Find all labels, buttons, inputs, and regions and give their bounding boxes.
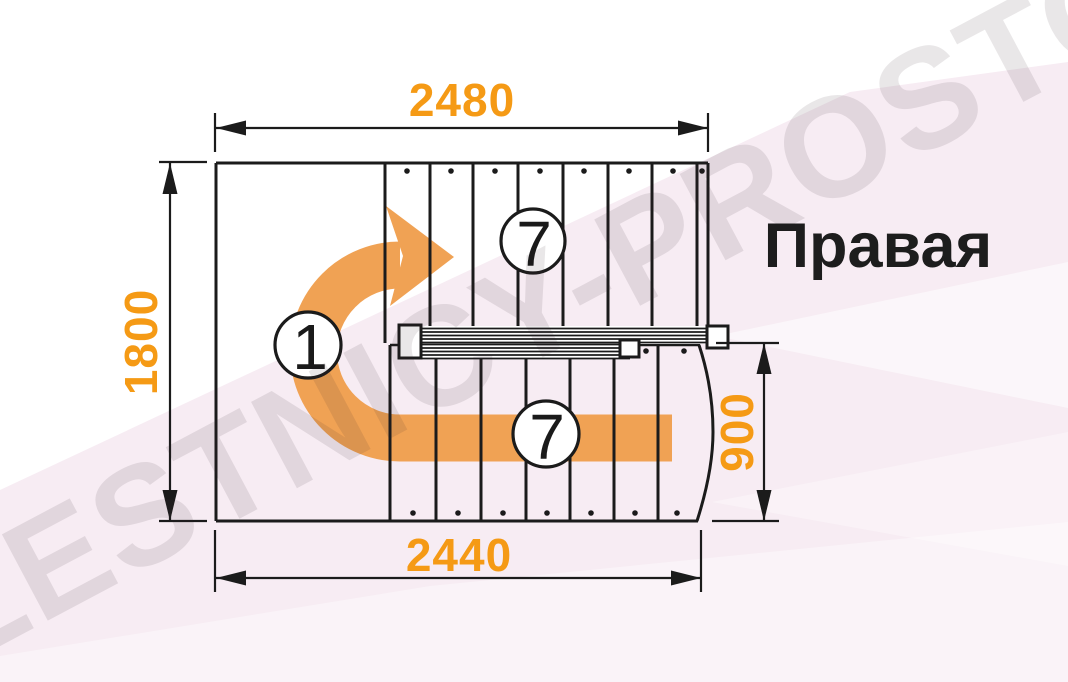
stair-orientation-title: Правая	[764, 210, 993, 282]
stair-plan-drawing: LESTNICY-PROSTO.RU 2480 1800 900 2440 Пр…	[0, 0, 1068, 682]
upper-steps-number: 7	[516, 212, 552, 276]
dimension-bottom-label: 2440	[406, 528, 512, 582]
dimension-top-label: 2480	[409, 73, 515, 127]
turn-marker-number: 1	[292, 315, 328, 379]
dimension-left-label: 1800	[114, 289, 168, 395]
lower-steps-number: 7	[529, 405, 565, 469]
dimension-right-label: 900	[710, 392, 764, 472]
